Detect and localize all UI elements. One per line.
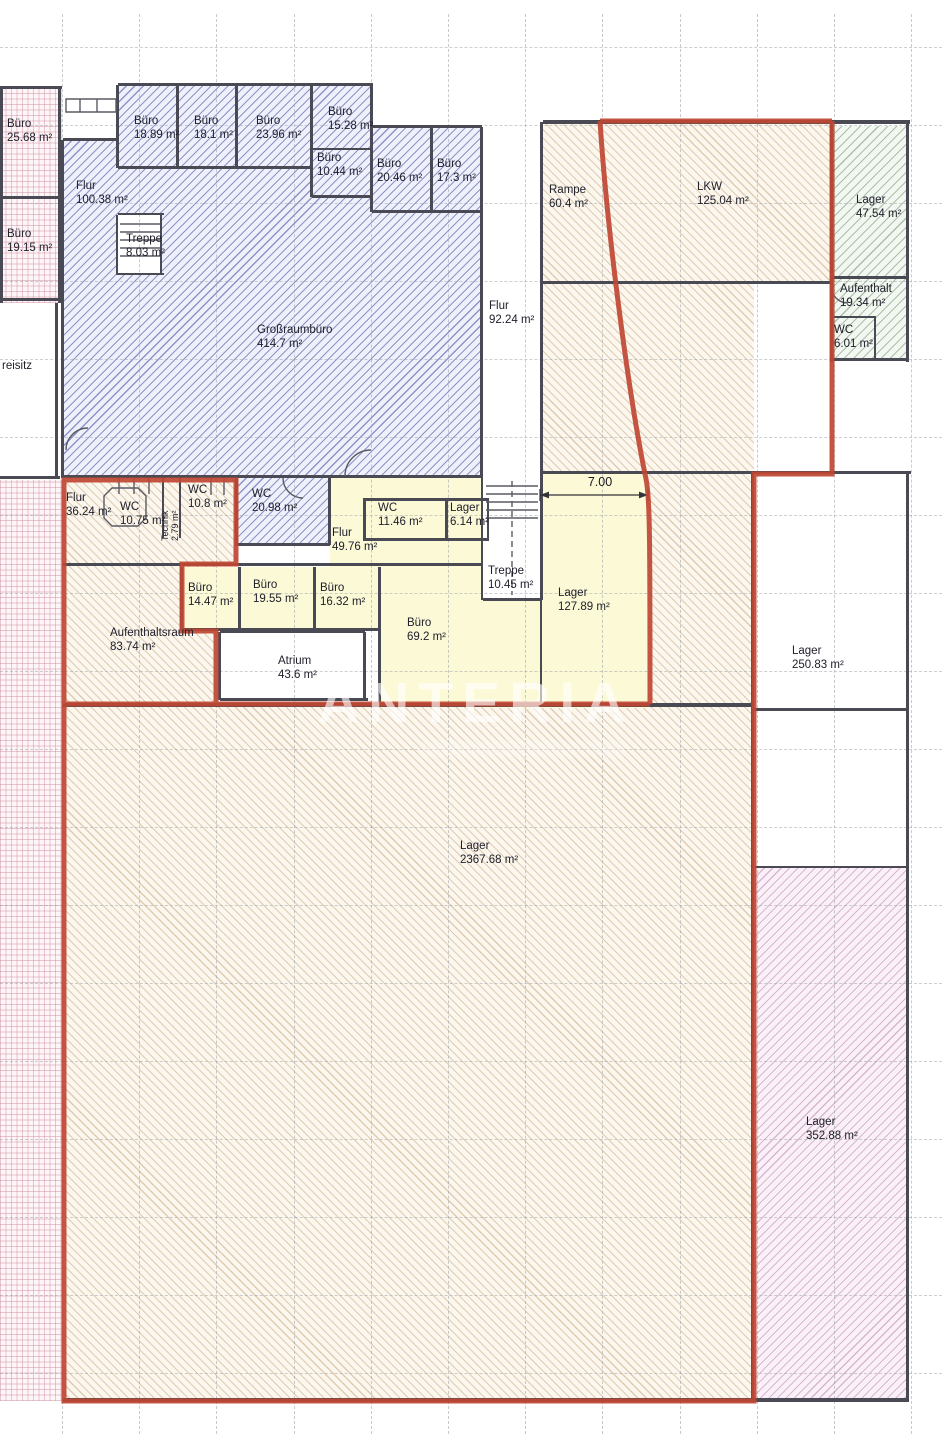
room-name: Büro (317, 152, 362, 166)
room-label-b-ro-5: Büro18.1 m² (194, 115, 233, 142)
room-name: Büro (134, 115, 179, 129)
room-label-aufenthalt-16: Aufenthalt19.34 m² (840, 283, 892, 310)
room-area: 127.89 m² (558, 601, 610, 615)
room-area: 15.28 m² (328, 120, 373, 134)
room-area: 25.68 m² (7, 132, 52, 146)
room-area: 18.89 m² (134, 129, 179, 143)
room-name: Lager (450, 502, 489, 516)
room-area: 6.01 m² (834, 338, 873, 352)
room-name: Büro (7, 118, 52, 132)
room-area: 2367.68 m² (460, 854, 518, 868)
room-name: Büro (437, 158, 476, 172)
room-label-b-ro-1: Büro19.15 m² (7, 228, 52, 255)
room-name: Lager (806, 1116, 858, 1130)
room-name: WC (120, 501, 165, 515)
room-area: 43.6 m² (278, 669, 317, 683)
room-area: 47.54 m² (856, 208, 901, 222)
room-area: 10.45 m² (488, 579, 533, 593)
room-name: Großraumbüro (257, 324, 332, 338)
room-label-b-ro-30: Büro19.55 m² (253, 579, 298, 606)
room-area: 10.8 m² (188, 498, 227, 512)
room-name: Büro (194, 115, 233, 129)
room-label-b-ro-31: Büro16.32 m² (320, 582, 365, 609)
room-label-rampe-13: Rampe60.4 m² (549, 184, 588, 211)
room-name: Lager (792, 645, 844, 659)
room-name: Flur (66, 492, 111, 506)
room-name: Büro (320, 582, 365, 596)
room-name: Flur (489, 300, 534, 314)
room-area: 11.46 m² (378, 516, 423, 530)
room-name: Atrium (278, 655, 317, 669)
room-name: Büro (256, 115, 301, 129)
room-area: 49.76 m² (332, 541, 377, 555)
room-area: 23.96 m² (256, 129, 301, 143)
room-label-b-ro-7: Büro15.28 m² (328, 106, 373, 133)
room-name: Büro (377, 158, 422, 172)
room-label-flur-2: Flur100.38 m² (76, 180, 128, 207)
room-name: Lager (460, 840, 518, 854)
room-label-treppe-3: Treppe8.03 m² (126, 233, 165, 260)
room-area: 414.7 m² (257, 338, 332, 352)
room-area: 125.04 m² (697, 195, 749, 209)
room-label-b-ro-0: Büro25.68 m² (7, 118, 52, 145)
room-label-lager-15: Lager47.54 m² (856, 194, 901, 221)
room-name: Technik (160, 510, 170, 541)
room-label-b-ro-32: Büro69.2 m² (407, 617, 446, 644)
room-label-wc-23: WC20.98 m² (252, 488, 297, 515)
room-area: 10.75 m² (120, 515, 165, 529)
room-label-lager-28: Lager127.89 m² (558, 587, 610, 614)
room-area: 36.24 m² (66, 506, 111, 520)
room-label-b-ro-9: Büro20.46 m² (377, 158, 422, 185)
room-area: 6.14 m² (450, 516, 489, 530)
room-name: WC (252, 488, 297, 502)
room-label-wc-22: WC10.8 m² (188, 484, 227, 511)
room-label-gro-raumb-ro-11: Großraumbüro414.7 m² (257, 324, 332, 351)
room-name: Treppe (126, 233, 165, 247)
room-name: Büro (253, 579, 298, 593)
room-area: 8.03 m² (126, 247, 165, 261)
room-area: 250.83 m² (792, 659, 844, 673)
dimension-label: 7.00 (558, 475, 642, 489)
room-area: 20.98 m² (252, 502, 297, 516)
room-label-wc-17: WC6.01 m² (834, 324, 873, 351)
room-name: LKW (697, 181, 749, 195)
room-area: 69.2 m² (407, 631, 446, 645)
room-area: 352.88 m² (806, 1130, 858, 1144)
room-label-b-ro-4: Büro18.89 m² (134, 115, 179, 142)
room-area: 18.1 m² (194, 129, 233, 143)
room-label-flur-19: Flur36.24 m² (66, 492, 111, 519)
room-area: 100.38 m² (76, 194, 128, 208)
room-area: 92.24 m² (489, 314, 534, 328)
room-area: 2.79 m² (170, 510, 180, 541)
room-name: Aufenthalt (840, 283, 892, 297)
room-label-flur-12: Flur92.24 m² (489, 300, 534, 327)
room-area: 17.3 m² (437, 172, 476, 186)
room-area: 10.44 m² (317, 166, 362, 180)
room-label-reisitz-18: reisitz (2, 360, 32, 374)
room-label-technik-21: Technik2.79 m² (160, 510, 180, 541)
room-name: Rampe (549, 184, 588, 198)
room-area: 20.46 m² (377, 172, 422, 186)
room-name: WC (378, 502, 423, 516)
room-label-treppe-27: Treppe10.45 m² (488, 565, 533, 592)
room-name: Büro (188, 582, 233, 596)
room-area: 19.55 m² (253, 593, 298, 607)
room-area: 60.4 m² (549, 198, 588, 212)
room-name: Treppe (488, 565, 533, 579)
room-label-lager-36: Lager2367.68 m² (460, 840, 518, 867)
room-name: WC (834, 324, 873, 338)
room-name: Büro (328, 106, 373, 120)
room-label-b-ro-10: Büro17.3 m² (437, 158, 476, 185)
room-area: 14.47 m² (188, 596, 233, 610)
room-area: 16.32 m² (320, 596, 365, 610)
room-name: Lager (558, 587, 610, 601)
room-name: reisitz (2, 360, 32, 374)
room-name: Flur (332, 527, 377, 541)
room-label-wc-20: WC10.75 m² (120, 501, 165, 528)
floor-plan-canvas: Büro25.68 m²Büro19.15 m²Flur100.38 m²Tre… (0, 0, 942, 1440)
watermark-subline (420, 741, 625, 757)
room-area: 19.34 m² (840, 297, 892, 311)
room-label-lager-37: Lager352.88 m² (806, 1116, 858, 1143)
room-label-aufenthaltsraum-33: Aufenthaltsraum83.74 m² (110, 627, 194, 654)
room-label-lager-26: Lager6.14 m² (450, 502, 489, 529)
room-name: Aufenthaltsraum (110, 627, 194, 641)
room-label-lkw-14: LKW125.04 m² (697, 181, 749, 208)
room-label-b-ro-29: Büro14.47 m² (188, 582, 233, 609)
room-area: 83.74 m² (110, 641, 194, 655)
room-area: 19.15 m² (7, 242, 52, 256)
room-label-b-ro-8: Büro10.44 m² (317, 152, 362, 179)
room-name: Büro (7, 228, 52, 242)
room-name: Büro (407, 617, 446, 631)
watermark: ANTERIA (318, 670, 634, 736)
room-label-atrium-34: Atrium43.6 m² (278, 655, 317, 682)
room-label-flur-24: Flur49.76 m² (332, 527, 377, 554)
room-name: WC (188, 484, 227, 498)
room-label-lager-35: Lager250.83 m² (792, 645, 844, 672)
room-name: Flur (76, 180, 128, 194)
room-label-b-ro-6: Büro23.96 m² (256, 115, 301, 142)
room-label-wc-25: WC11.46 m² (378, 502, 423, 529)
room-name: Lager (856, 194, 901, 208)
